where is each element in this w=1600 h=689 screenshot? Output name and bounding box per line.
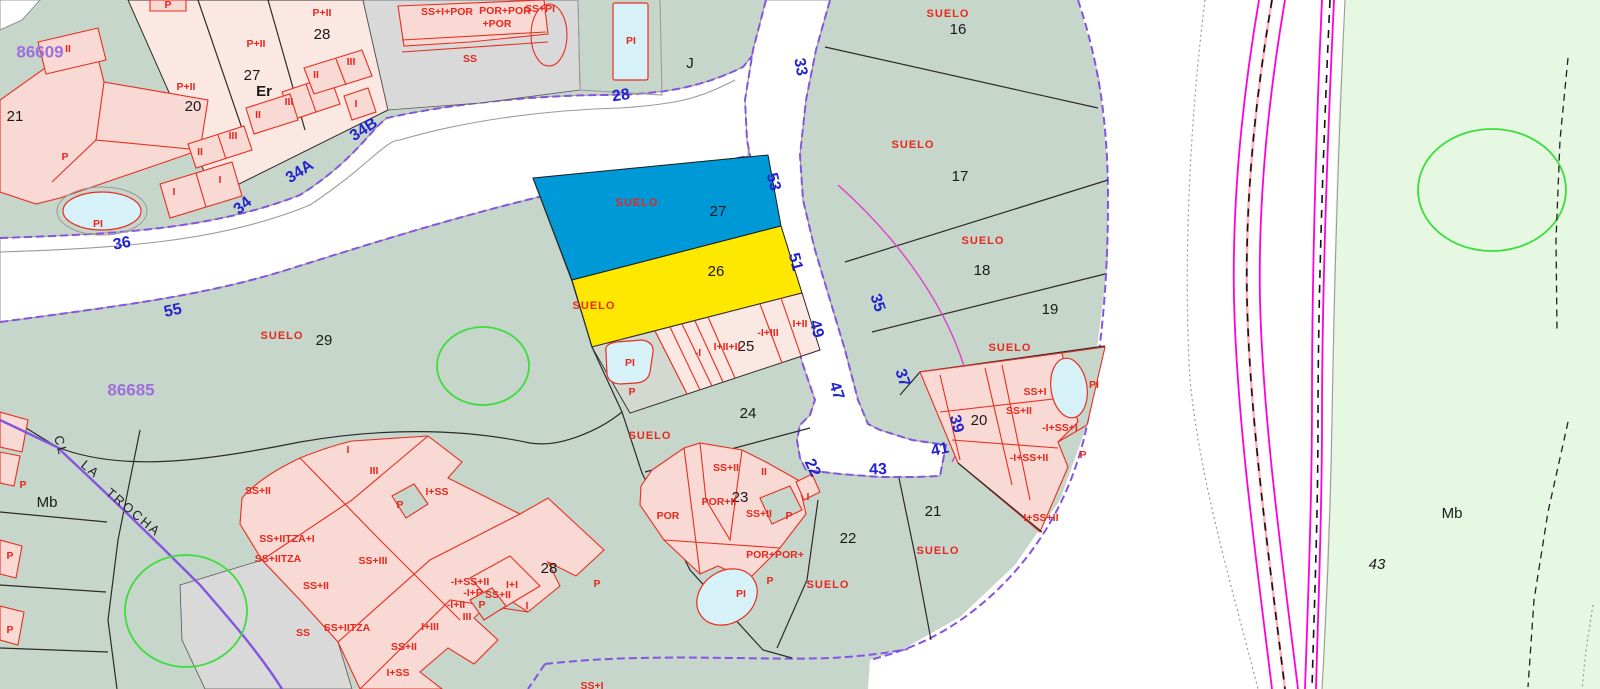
cadastral-ref-label: 86609 bbox=[16, 42, 63, 61]
building-height-label: SS bbox=[296, 627, 310, 639]
building-height-label: SS+I+POR bbox=[421, 6, 473, 18]
parcel-number-label: 20 bbox=[185, 98, 202, 115]
building-height-label: P bbox=[628, 386, 635, 398]
building-height-label: III bbox=[347, 56, 356, 68]
building-height-label: P bbox=[164, 0, 171, 11]
building-height-label: P bbox=[6, 624, 13, 636]
building-height-label: PI bbox=[625, 357, 635, 369]
building-height-label: I+SS bbox=[425, 486, 448, 498]
misc-label: Mb bbox=[1442, 505, 1463, 522]
building-height-label: SS+II bbox=[245, 485, 271, 497]
building-height-label: II bbox=[313, 69, 319, 81]
building-height-label: P+II bbox=[247, 38, 266, 50]
building-height-label: SS+PI bbox=[525, 3, 555, 15]
building-height-label: SS+II bbox=[485, 589, 511, 601]
green-zone bbox=[1322, 0, 1600, 689]
building-height-label: II bbox=[255, 109, 261, 121]
street-number-label: 43 bbox=[869, 461, 887, 479]
building-height-label: SS+IITZA+I bbox=[259, 533, 315, 545]
building-height-label: I+SS bbox=[386, 667, 409, 679]
parcel-number-label: 17 bbox=[952, 168, 969, 185]
building-height-label: P bbox=[478, 599, 485, 611]
building-height-label: III bbox=[370, 465, 379, 477]
building-height-label: I bbox=[347, 444, 350, 456]
suelo-label: SUELO bbox=[962, 235, 1005, 247]
building-height-label: -I+SS+I bbox=[1042, 422, 1078, 434]
cadastral-ref-label: 86685 bbox=[107, 380, 154, 399]
misc-label: Mb bbox=[37, 494, 58, 511]
building-height-label: I bbox=[219, 174, 222, 186]
street-number-label: 36 bbox=[112, 234, 133, 254]
suelo-label: SUELO bbox=[989, 342, 1032, 354]
building-height-label: SS+II bbox=[391, 641, 417, 653]
building-height-label: III bbox=[285, 96, 294, 108]
building-height-label: P bbox=[766, 575, 773, 587]
building-height-label: P bbox=[61, 151, 68, 163]
building-height-label: -I+III bbox=[757, 327, 778, 339]
building-height-label: -I+P bbox=[463, 587, 483, 599]
building-height-label: I+II bbox=[793, 318, 808, 330]
building-height-label: I+III bbox=[421, 621, 439, 633]
building-height-label: SS+IITZA bbox=[255, 553, 302, 565]
building-height-label: SS+II bbox=[303, 580, 329, 592]
building-height-label: I bbox=[526, 600, 529, 612]
building-height-label: I bbox=[355, 98, 358, 110]
building-height-label: I bbox=[807, 491, 810, 503]
building-height-label: P bbox=[785, 510, 792, 522]
building-height-label: +POR bbox=[483, 18, 512, 30]
street-number-label: 28 bbox=[611, 86, 631, 105]
building-height-label: SS+II bbox=[1006, 405, 1032, 417]
suelo-label: SUELO bbox=[261, 330, 304, 342]
suelo-label: SUELO bbox=[807, 579, 850, 591]
building-height-label: -I+SS+II bbox=[1010, 452, 1049, 464]
building-height-label: POR bbox=[657, 510, 680, 522]
building-height-label: PI bbox=[1089, 379, 1099, 391]
parcel-number-label: 28 bbox=[314, 26, 331, 43]
suelo-label: SUELO bbox=[616, 197, 659, 209]
misc-label: 43 bbox=[1369, 556, 1386, 573]
building-height-label: PI bbox=[626, 35, 636, 47]
building-height-label: II bbox=[197, 146, 203, 158]
building-height-label: P+II bbox=[177, 81, 196, 93]
building-height-label: SS+III bbox=[359, 555, 388, 567]
building-height-label: SS bbox=[463, 53, 477, 65]
parcel-number-label: 27 bbox=[710, 203, 727, 220]
parcel-number-label: 28 bbox=[541, 560, 558, 577]
building-height-label: P bbox=[396, 499, 403, 511]
parcel-number-label: 18 bbox=[974, 262, 991, 279]
building-height-label: P bbox=[1079, 449, 1086, 461]
building-height-label: SS+II bbox=[746, 508, 772, 520]
building-height-label: P bbox=[6, 550, 13, 562]
building-height-label: P bbox=[19, 479, 26, 491]
parcel-number-label: 19 bbox=[1042, 301, 1059, 318]
cadastral-map-viewport[interactable]: 28335351494735373941432234B34A343655 212… bbox=[0, 0, 1600, 689]
building-height-label: II bbox=[65, 43, 71, 55]
building-height-label: POR+POR bbox=[479, 5, 531, 17]
parcel-number-label: 16 bbox=[950, 21, 967, 38]
building-height-label: I+SS+II bbox=[1023, 512, 1058, 524]
parcel-number-label: 24 bbox=[740, 405, 757, 422]
building-height-label: PI bbox=[736, 588, 746, 600]
parcel-number-label: 20 bbox=[971, 412, 988, 429]
building-height-label: PI bbox=[93, 218, 103, 230]
building-height-label: P bbox=[593, 578, 600, 590]
building-height-label: II bbox=[761, 466, 767, 478]
building-height-label: III bbox=[463, 611, 472, 623]
building-height-label: SS+I bbox=[1023, 386, 1046, 398]
parcel-number-label: 22 bbox=[840, 530, 857, 547]
building-height-label: POR+POR+ bbox=[746, 549, 804, 561]
suelo-label: SUELO bbox=[573, 300, 616, 312]
building-height-label: I bbox=[173, 186, 176, 198]
building-height-label: SS+IITZA bbox=[324, 622, 371, 634]
suelo-label: SUELO bbox=[917, 545, 960, 557]
building-height-label: P+II bbox=[313, 7, 332, 19]
building-height-label: III bbox=[229, 130, 238, 142]
parcel-number-label: 21 bbox=[7, 108, 24, 125]
parcel-number-label: 26 bbox=[708, 263, 725, 280]
suelo-label: SUELO bbox=[892, 139, 935, 151]
misc-label: Er bbox=[256, 83, 272, 100]
building-height-label: I+II+II bbox=[714, 341, 741, 353]
parcel-number-label: 21 bbox=[925, 503, 942, 520]
building-height-label: SS+I bbox=[580, 680, 603, 689]
street-number-label: 41 bbox=[929, 440, 950, 460]
building-height-label: -I bbox=[695, 347, 701, 359]
street-number-label: 55 bbox=[162, 301, 183, 321]
building-height-label: SS+II bbox=[713, 462, 739, 474]
parcel-number-label: 29 bbox=[316, 332, 333, 349]
parcel-number-label: 27 bbox=[244, 67, 261, 84]
building-height-label: POR+II bbox=[702, 496, 737, 508]
cadastral-map: 28335351494735373941432234B34A343655 212… bbox=[0, 0, 1600, 689]
street-number-label: 33 bbox=[790, 57, 810, 78]
suelo-label: SUELO bbox=[927, 8, 970, 20]
suelo-label: SUELO bbox=[629, 430, 672, 442]
building-height-label: -I+II bbox=[447, 599, 465, 611]
misc-label: J bbox=[686, 55, 694, 72]
